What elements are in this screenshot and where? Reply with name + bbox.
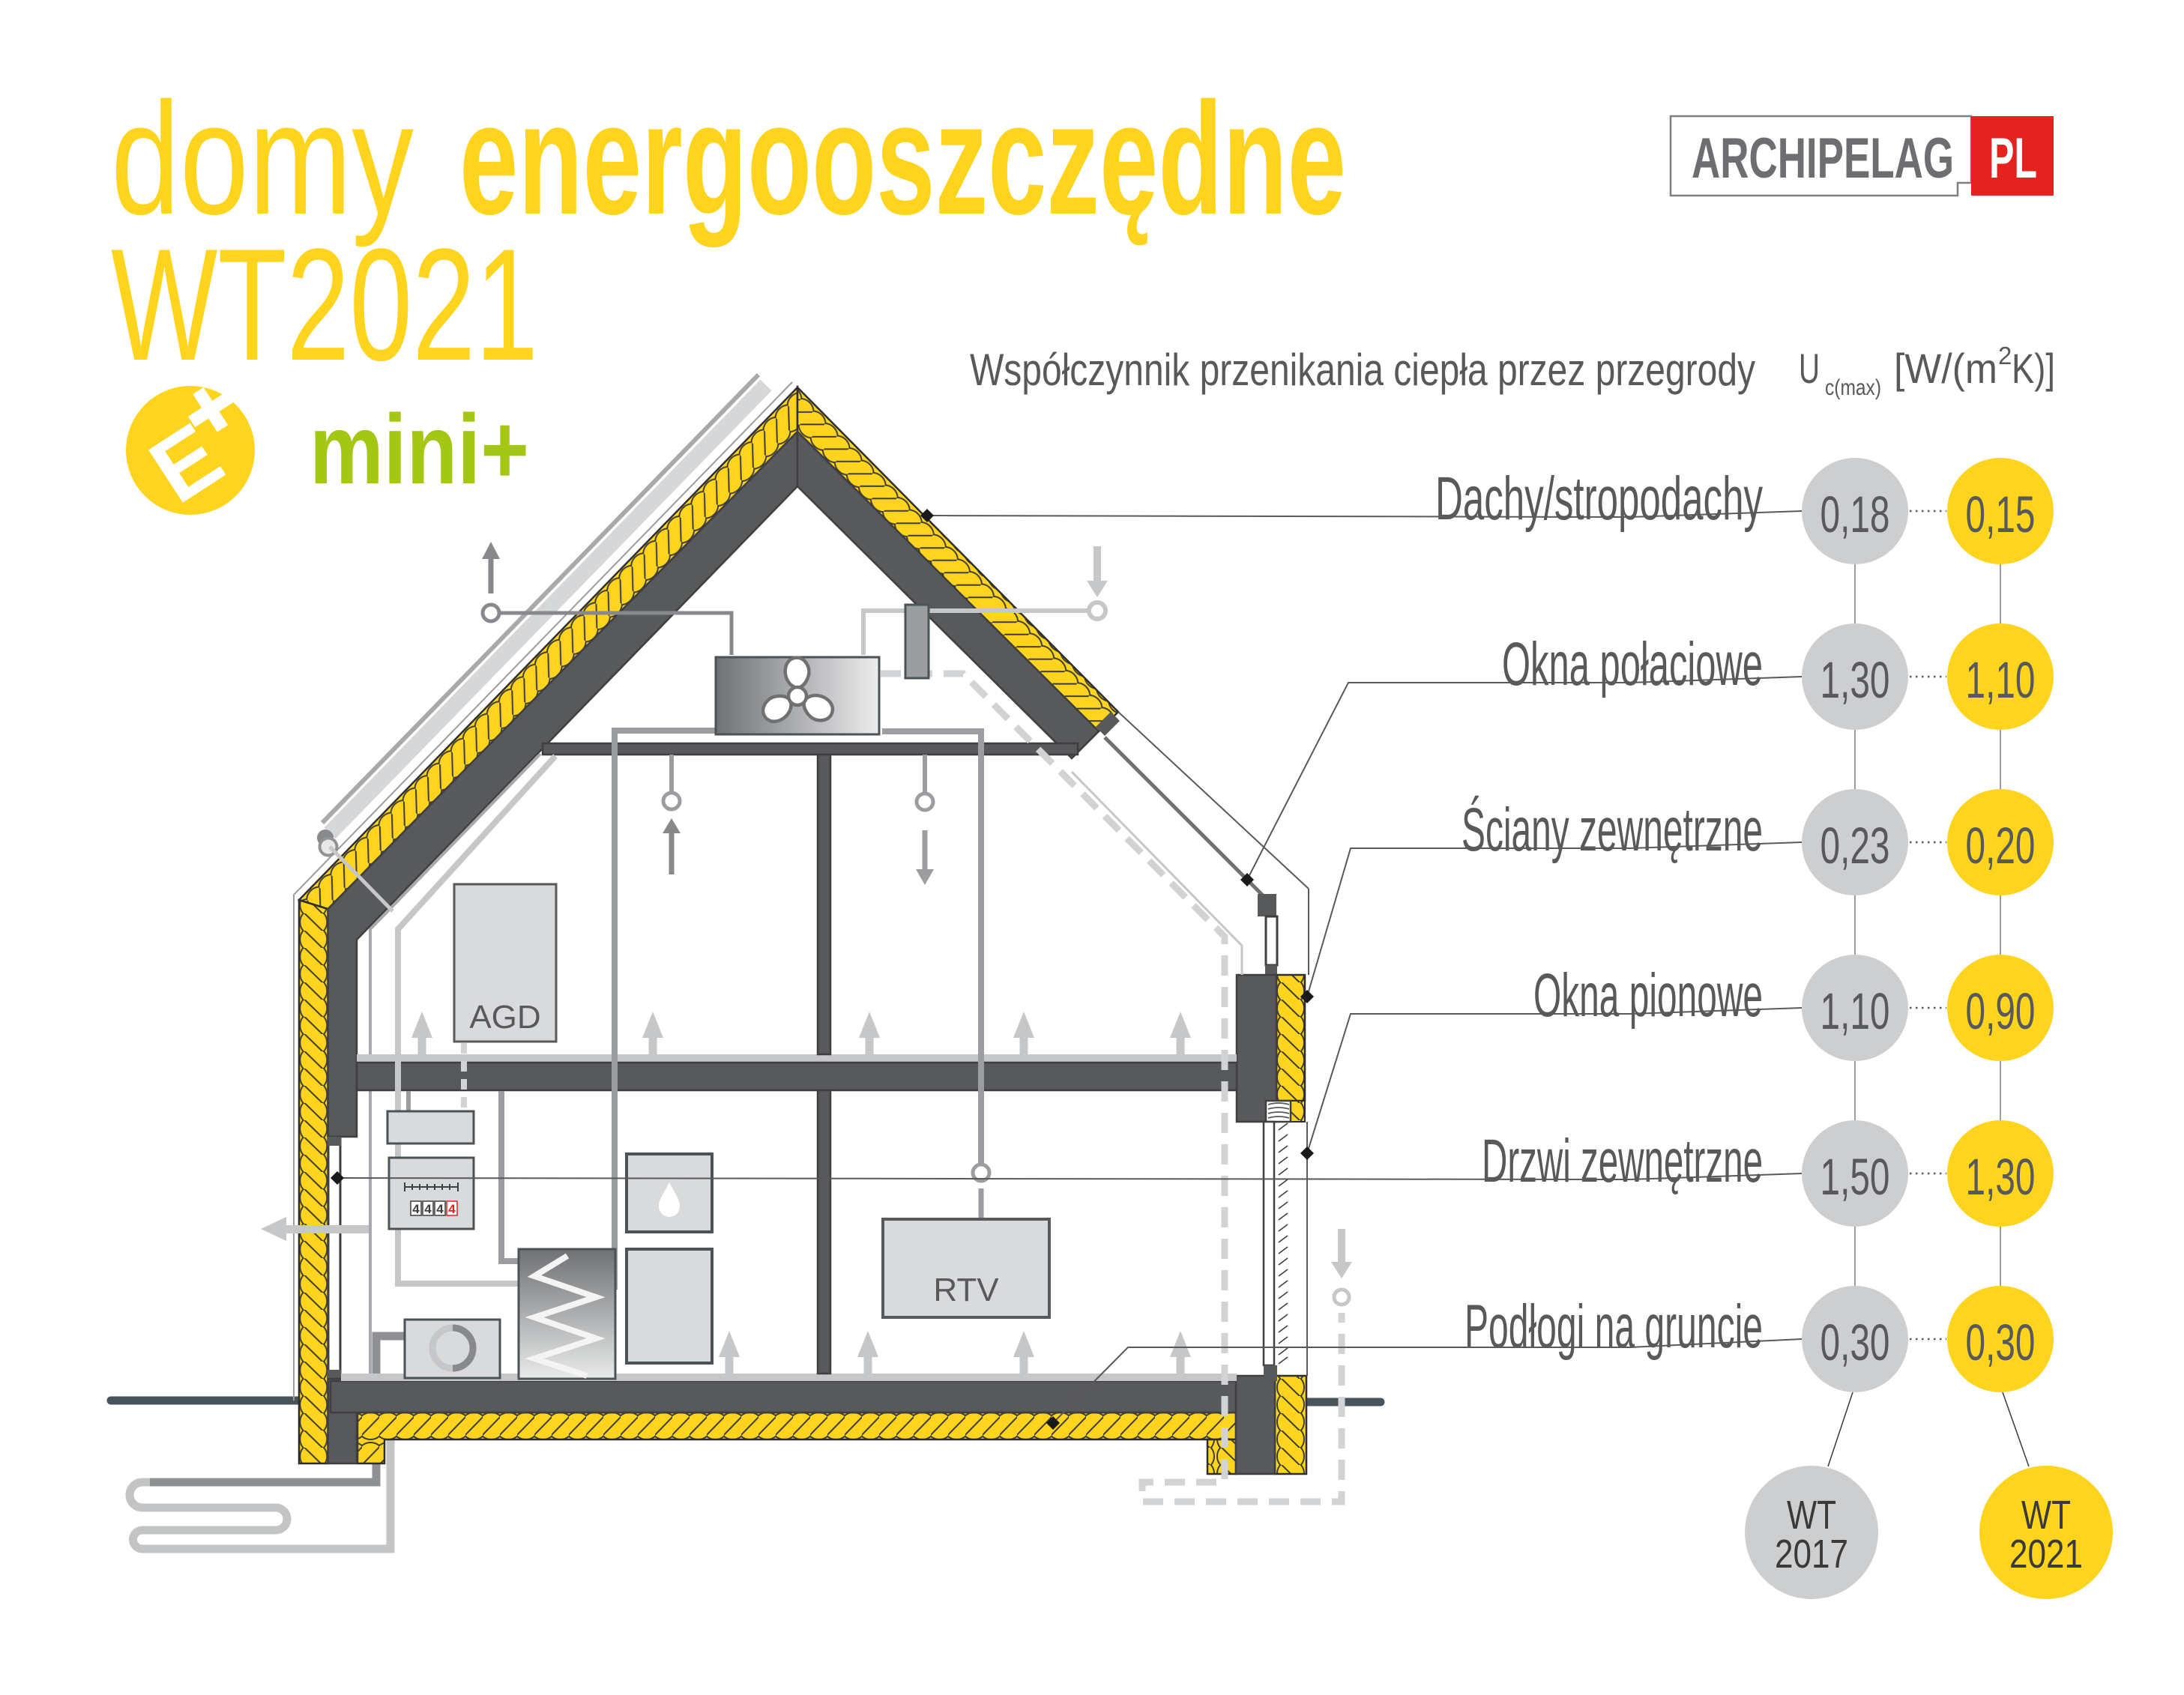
svg-text:energooszczędne: energooszczędne [459, 70, 1346, 248]
svg-text:WT: WT [2021, 1493, 2071, 1538]
svg-text:WT: WT [1787, 1493, 1836, 1538]
svg-text:WT2021: WT2021 [111, 216, 538, 394]
svg-text:0,18: 0,18 [1820, 486, 1890, 543]
svg-text:2017: 2017 [1775, 1532, 1848, 1577]
svg-text:4: 4 [424, 1202, 432, 1216]
svg-text:4: 4 [436, 1202, 444, 1216]
svg-text:Okna połaciowe: Okna połaciowe [1502, 630, 1763, 698]
svg-text:0,30: 0,30 [1820, 1314, 1890, 1371]
svg-text:[W/(m: [W/(m [1894, 345, 1997, 392]
svg-text:1,50: 1,50 [1820, 1148, 1890, 1206]
svg-text:U: U [1799, 345, 1820, 392]
svg-text:1,10: 1,10 [1820, 982, 1890, 1040]
svg-text:2021: 2021 [2009, 1532, 2083, 1577]
svg-text:Drzwi zewnętrzne: Drzwi zewnętrzne [1482, 1127, 1763, 1195]
svg-text:4: 4 [412, 1202, 420, 1216]
svg-text:0,23: 0,23 [1820, 817, 1890, 874]
svg-text:RTV: RTV [933, 1272, 999, 1308]
svg-text:c(max): c(max) [1825, 375, 1881, 400]
svg-text:AGD: AGD [469, 999, 540, 1036]
svg-text:ARCHIPELAG: ARCHIPELAG [1692, 127, 1954, 190]
svg-text:0,15: 0,15 [1966, 486, 2036, 543]
svg-text:0,90: 0,90 [1966, 982, 2036, 1040]
svg-text:1,10: 1,10 [1966, 651, 2036, 709]
svg-text:Ściany zewnętrzne: Ściany zewnętrzne [1461, 796, 1763, 864]
svg-text:Dachy/stropodachy: Dachy/stropodachy [1435, 465, 1763, 533]
svg-text:0,30: 0,30 [1966, 1314, 2036, 1371]
svg-text:Współczynnik przenikania ciepł: Współczynnik przenikania ciepła przez pr… [970, 345, 1755, 395]
svg-text:Podłogi na gruncie: Podłogi na gruncie [1464, 1293, 1763, 1361]
svg-text:PL: PL [1989, 127, 2037, 190]
svg-text:0,20: 0,20 [1966, 817, 2036, 874]
svg-text:Okna pionowe: Okna pionowe [1533, 961, 1763, 1030]
svg-text:4: 4 [448, 1202, 456, 1216]
svg-text:2: 2 [1998, 342, 2012, 369]
svg-text:1,30: 1,30 [1966, 1148, 2036, 1206]
svg-text:mini+: mini+ [310, 394, 529, 504]
svg-text:1,30: 1,30 [1820, 651, 1890, 709]
svg-text:K)]: K)] [2012, 345, 2055, 392]
